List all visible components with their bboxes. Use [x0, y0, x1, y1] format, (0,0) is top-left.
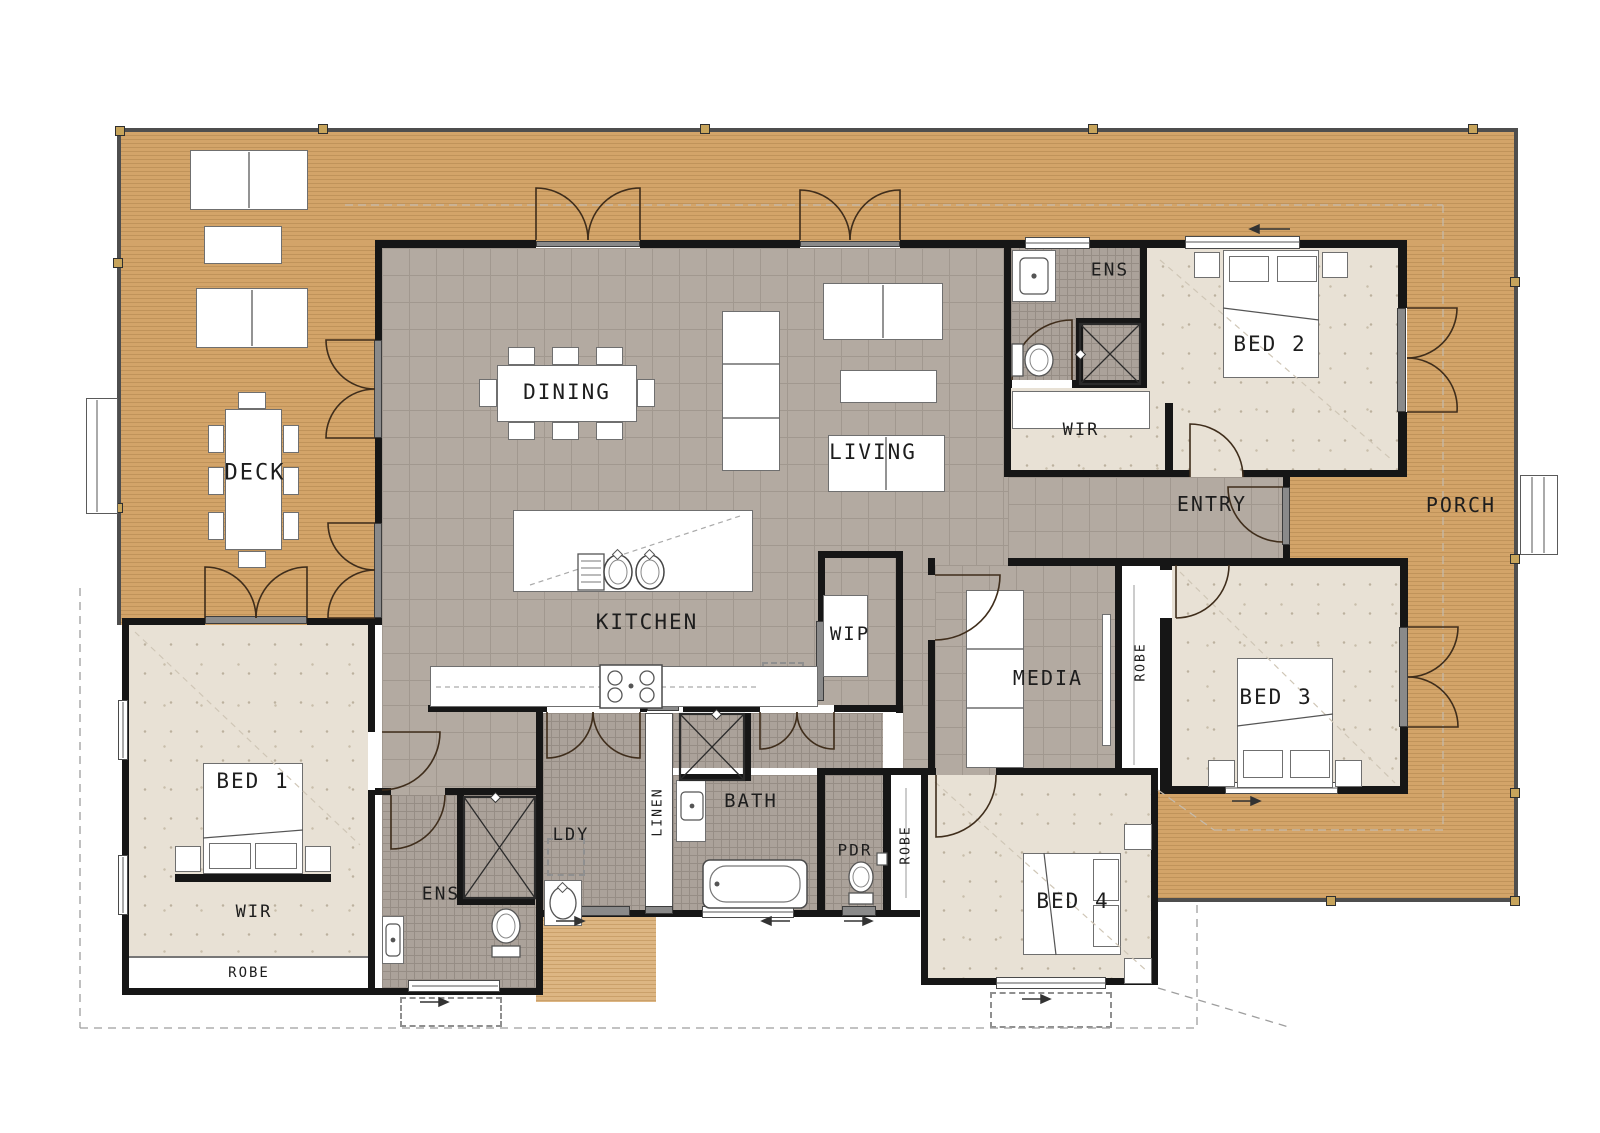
wall — [1072, 380, 1147, 388]
wall — [1400, 558, 1408, 627]
room-label-bed1: BED 1 — [216, 769, 289, 793]
wall — [921, 978, 996, 985]
wall — [1140, 240, 1147, 388]
dining-chair — [508, 347, 535, 365]
dining-chair — [552, 347, 579, 365]
wall — [834, 705, 900, 712]
wall — [375, 240, 536, 248]
wall — [1400, 727, 1408, 794]
wall — [818, 551, 903, 558]
robe-bed1-front-line — [129, 956, 368, 958]
deck-post — [1326, 896, 1336, 906]
window — [1185, 236, 1300, 249]
room-label-bed4: BED 4 — [1036, 889, 1109, 913]
kitchen-bench — [430, 666, 818, 707]
wall — [1283, 545, 1290, 558]
side-table — [1208, 760, 1235, 787]
wall — [445, 788, 536, 795]
dining-chair — [479, 379, 497, 407]
door-sill — [800, 241, 900, 247]
dining-chair — [596, 347, 623, 365]
room-label-bed3: BED 3 — [1239, 685, 1312, 709]
window — [118, 855, 128, 915]
floor-entry — [1008, 477, 1283, 558]
wall — [817, 768, 825, 910]
floor-bath-upper — [673, 713, 883, 768]
wall — [928, 558, 935, 575]
door-sill — [645, 906, 673, 914]
side-table — [175, 846, 201, 872]
wall — [1165, 403, 1173, 470]
wall — [1090, 240, 1185, 248]
deck-post — [1510, 896, 1520, 906]
window — [1025, 237, 1090, 249]
side-table — [1335, 760, 1362, 787]
deck-post — [115, 126, 125, 136]
coffee-table — [840, 370, 937, 403]
wall — [817, 768, 936, 775]
wall — [1283, 477, 1290, 487]
wall — [1076, 318, 1083, 387]
side-table — [1194, 252, 1220, 278]
room-label-wip: WIP — [830, 623, 870, 645]
door-sill — [536, 241, 640, 247]
door-sill — [1282, 487, 1290, 545]
deck-edge-frame — [1158, 898, 1518, 902]
window — [118, 700, 128, 760]
deck-post — [1088, 124, 1098, 134]
porch-entry — [1290, 477, 1518, 565]
deck-chair — [208, 467, 224, 495]
deck-table — [204, 226, 282, 264]
deck-chair — [238, 392, 266, 409]
door-sill — [374, 340, 382, 438]
wall — [1398, 412, 1407, 477]
room-label-dining: DINING — [523, 380, 611, 404]
room-label-bath: BATH — [724, 790, 778, 812]
door-sill — [205, 616, 307, 624]
deck-chair — [238, 551, 266, 568]
deck-edge-frame — [1514, 128, 1518, 902]
sofa — [823, 283, 943, 340]
wall — [1160, 558, 1172, 570]
room-label-ens-master: ENS — [422, 884, 461, 905]
wall — [996, 768, 1158, 775]
wall — [307, 618, 375, 625]
tv-unit — [1102, 614, 1111, 746]
dining-chair — [552, 422, 579, 440]
room-label-ens-bed2: ENS — [1091, 260, 1130, 281]
wall — [122, 618, 205, 625]
room-label-wir-master: WIR — [236, 902, 273, 922]
side-table — [305, 846, 331, 872]
wall — [1008, 558, 1408, 566]
deck-lounge — [196, 288, 308, 348]
window — [702, 906, 794, 918]
room-label-pdr: PDR — [838, 841, 873, 860]
side-table — [1124, 824, 1152, 850]
wall — [368, 790, 375, 995]
wall — [1151, 768, 1158, 985]
wall — [1004, 470, 1190, 477]
deck-top — [117, 128, 1518, 243]
floor-hall-west — [382, 705, 536, 795]
step-outline — [400, 997, 502, 1027]
wall — [375, 618, 382, 625]
wall — [1076, 318, 1143, 325]
wall — [536, 705, 543, 995]
room-label-media: MEDIA — [1013, 666, 1083, 690]
deck-chair — [208, 425, 224, 453]
entry-step — [1520, 475, 1558, 555]
pillow — [1229, 256, 1269, 282]
wall — [122, 618, 129, 995]
room-label-deck: DECK — [225, 461, 286, 486]
deck-post — [113, 258, 123, 268]
door-sill — [842, 906, 876, 916]
room-label-bed2: BED 2 — [1233, 332, 1306, 356]
wall — [1160, 618, 1172, 786]
deck-post — [700, 124, 710, 134]
wall — [368, 618, 375, 732]
wall — [1300, 240, 1400, 248]
wall — [457, 898, 535, 905]
deck-post — [1510, 788, 1520, 798]
room-label-ldy: LDY — [553, 825, 590, 845]
pillow — [1277, 256, 1317, 282]
dining-chair — [596, 422, 623, 440]
pillow — [1290, 750, 1330, 778]
wall — [1243, 470, 1400, 477]
side-table — [1124, 958, 1152, 984]
porch-east — [1408, 558, 1518, 792]
window — [996, 977, 1106, 989]
wall — [1004, 240, 1011, 477]
deck-lounge — [190, 150, 308, 210]
wall — [883, 768, 891, 910]
room-label-robe-bed1: ROBE — [228, 965, 270, 981]
wall — [1398, 240, 1407, 308]
wall — [921, 768, 928, 985]
dining-chair — [508, 422, 535, 440]
deck-post — [318, 124, 328, 134]
step-outline — [990, 992, 1112, 1028]
dining-chair — [637, 379, 655, 407]
deck-edge-frame — [117, 128, 121, 625]
pillow — [209, 843, 251, 869]
deck-post — [1468, 124, 1478, 134]
vanity — [676, 780, 706, 842]
deck-chair — [283, 512, 299, 540]
door-sill — [1399, 627, 1408, 727]
room-label-living: LIVING — [829, 440, 917, 464]
wall — [175, 874, 331, 882]
deck-chair — [208, 512, 224, 540]
vanity — [382, 916, 404, 964]
door-sill — [1397, 308, 1406, 412]
door-sill — [374, 523, 382, 618]
wall — [375, 240, 382, 340]
room-label-porch: PORCH — [1426, 493, 1496, 517]
room-label-robe-bed3: ROBE — [1134, 642, 1149, 681]
deck-post — [1510, 277, 1520, 287]
pillow — [255, 843, 297, 869]
room-label-linen: LINEN — [651, 787, 666, 836]
entry-step — [86, 398, 118, 514]
porch-se — [1158, 790, 1518, 902]
room-label-entry: ENTRY — [1177, 492, 1247, 516]
island-bench — [513, 510, 753, 592]
vanity — [1012, 250, 1056, 302]
wall — [640, 240, 800, 248]
timber-landing — [536, 917, 656, 1002]
room-label-wir-bed2: WIR — [1063, 420, 1100, 440]
wall — [928, 640, 935, 775]
room-label-robe-bed4: ROBE — [899, 825, 914, 864]
wall — [1115, 558, 1122, 775]
wall — [1004, 380, 1012, 388]
deck-post — [1510, 554, 1520, 564]
laundry-trough — [544, 880, 582, 926]
wall — [375, 438, 382, 523]
deck-chair — [283, 425, 299, 453]
shelf-unit — [722, 311, 780, 471]
pillow — [1243, 750, 1283, 778]
wall — [896, 551, 903, 713]
room-label-kitchen: KITCHEN — [596, 610, 699, 634]
wall — [744, 713, 751, 781]
wall — [375, 788, 391, 795]
window — [408, 980, 500, 992]
side-table — [1322, 252, 1348, 278]
floor-plan: DECK DINING LIVING KITCHEN WIP ENTRY POR… — [0, 0, 1600, 1133]
